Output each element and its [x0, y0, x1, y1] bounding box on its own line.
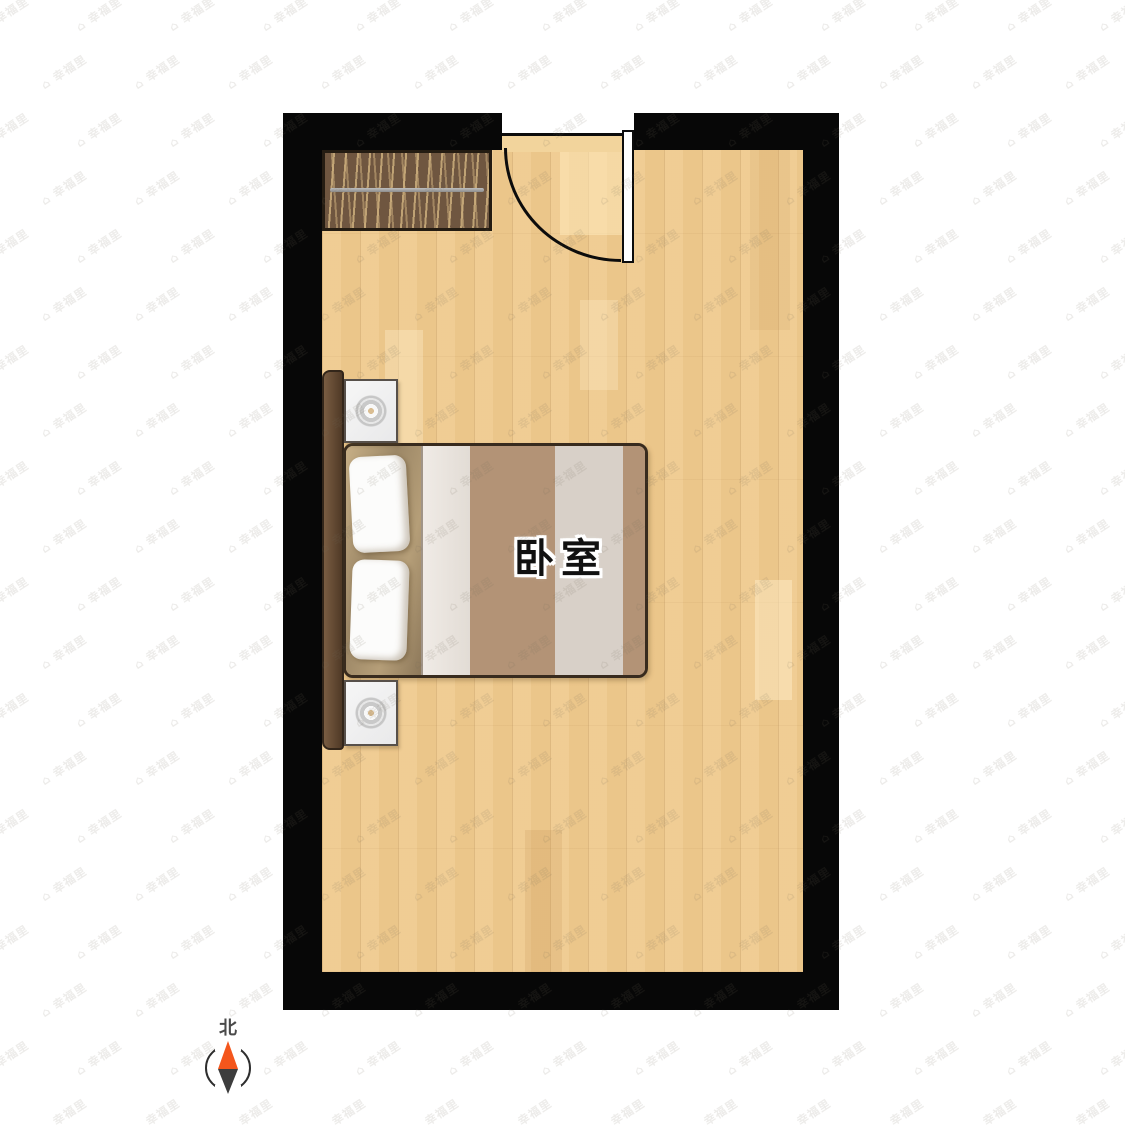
watermark-item: ⌂ 幸福里 [1061, 863, 1113, 905]
watermark-item: ⌂ 幸福里 [166, 225, 218, 267]
watermark-item: ⌂ 幸福里 [1061, 747, 1113, 789]
watermark-item: ⌂ 幸福里 [73, 805, 125, 847]
watermark-item: ⌂ 幸福里 [1061, 1095, 1113, 1125]
watermark-item: ⌂ 幸福里 [38, 51, 90, 93]
watermark-item: ⌂ 幸福里 [538, 1037, 590, 1079]
watermark-item: ⌂ 幸福里 [73, 689, 125, 731]
watermark-item: ⌂ 幸福里 [73, 457, 125, 499]
watermark-item: ⌂ 幸福里 [689, 1095, 741, 1125]
wall-left [283, 113, 322, 1010]
watermark-item: ⌂ 幸福里 [131, 1095, 183, 1125]
watermark-item: ⌂ 幸福里 [1096, 689, 1125, 731]
watermark-item: ⌂ 幸福里 [968, 399, 1020, 441]
watermark-item: ⌂ 幸福里 [631, 0, 683, 35]
watermark-item: ⌂ 幸福里 [1003, 921, 1055, 963]
watermark-item: ⌂ 幸福里 [317, 1095, 369, 1125]
room-label: 卧室 [461, 537, 661, 581]
watermark-item: ⌂ 幸福里 [73, 225, 125, 267]
watermark-item: ⌂ 幸福里 [352, 0, 404, 35]
watermark-item: ⌂ 幸福里 [410, 51, 462, 93]
watermark-item: ⌂ 幸福里 [875, 979, 927, 1021]
watermark-item: ⌂ 幸福里 [724, 1037, 776, 1079]
watermark-item: ⌂ 幸福里 [1061, 167, 1113, 209]
watermark-item: ⌂ 幸福里 [1003, 573, 1055, 615]
watermark-item: ⌂ 幸福里 [968, 747, 1020, 789]
watermark-item: ⌂ 幸福里 [596, 51, 648, 93]
watermark-item: ⌂ 幸福里 [224, 51, 276, 93]
watermark-item: ⌂ 幸福里 [596, 1095, 648, 1125]
watermark-item: ⌂ 幸福里 [875, 1095, 927, 1125]
watermark-item: ⌂ 幸福里 [445, 1037, 497, 1079]
watermark-item: ⌂ 幸福里 [817, 1037, 869, 1079]
watermark-item: ⌂ 幸福里 [224, 167, 276, 209]
watermark-item: ⌂ 幸福里 [38, 283, 90, 325]
watermark-item: ⌂ 幸福里 [968, 51, 1020, 93]
watermark-item: ⌂ 幸福里 [131, 631, 183, 673]
watermark-item: ⌂ 幸福里 [1061, 283, 1113, 325]
watermark-item: ⌂ 幸福里 [38, 979, 90, 1021]
watermark-item: ⌂ 幸福里 [0, 805, 32, 847]
watermark-item: ⌂ 幸福里 [38, 515, 90, 557]
floor-plank-patch [580, 300, 618, 390]
watermark-item: ⌂ 幸福里 [910, 341, 962, 383]
wardrobe-rail-icon [330, 188, 484, 192]
watermark-item: ⌂ 幸福里 [689, 51, 741, 93]
pillow [349, 455, 411, 554]
watermark-item: ⌂ 幸福里 [910, 573, 962, 615]
watermark-item: ⌂ 幸福里 [910, 689, 962, 731]
watermark-item: ⌂ 幸福里 [1061, 515, 1113, 557]
watermark-item: ⌂ 幸福里 [38, 1095, 90, 1125]
watermark-item: ⌂ 幸福里 [910, 805, 962, 847]
watermark-item: ⌂ 幸福里 [224, 863, 276, 905]
watermark-item: ⌂ 幸福里 [73, 341, 125, 383]
watermark-item: ⌂ 幸福里 [166, 805, 218, 847]
watermark-item: ⌂ 幸福里 [631, 1037, 683, 1079]
watermark-item: ⌂ 幸福里 [538, 0, 590, 35]
watermark-item: ⌂ 幸福里 [503, 1095, 555, 1125]
door-opening [502, 112, 634, 133]
watermark-item: ⌂ 幸福里 [224, 515, 276, 557]
watermark-item: ⌂ 幸福里 [1003, 689, 1055, 731]
watermark-item: ⌂ 幸福里 [968, 863, 1020, 905]
watermark-item: ⌂ 幸福里 [0, 0, 32, 35]
watermark-item: ⌂ 幸福里 [968, 979, 1020, 1021]
north-compass: 北 [185, 1010, 275, 1110]
watermark-item: ⌂ 幸福里 [1003, 225, 1055, 267]
watermark-item: ⌂ 幸福里 [1096, 0, 1125, 35]
wardrobe [322, 150, 492, 231]
table-lamp-icon [354, 394, 388, 428]
bed-headboard [322, 370, 344, 750]
watermark-item: ⌂ 幸福里 [166, 921, 218, 963]
watermark-item: ⌂ 幸福里 [131, 979, 183, 1021]
watermark-item: ⌂ 幸福里 [1096, 109, 1125, 151]
watermark-item: ⌂ 幸福里 [410, 1095, 462, 1125]
watermark-item: ⌂ 幸福里 [910, 1037, 962, 1079]
watermark-item: ⌂ 幸福里 [131, 863, 183, 905]
watermark-item: ⌂ 幸福里 [0, 1037, 32, 1079]
watermark-item: ⌂ 幸福里 [73, 109, 125, 151]
floor-plank-patch [755, 580, 792, 700]
watermark-item: ⌂ 幸福里 [1096, 921, 1125, 963]
watermark-item: ⌂ 幸福里 [1096, 341, 1125, 383]
watermark-item: ⌂ 幸福里 [875, 51, 927, 93]
watermark-item: ⌂ 幸福里 [782, 51, 834, 93]
watermark-item: ⌂ 幸福里 [1003, 341, 1055, 383]
watermark-item: ⌂ 幸福里 [1061, 399, 1113, 441]
watermark-item: ⌂ 幸福里 [1003, 0, 1055, 35]
watermark-item: ⌂ 幸福里 [1003, 109, 1055, 151]
watermark-item: ⌂ 幸福里 [875, 863, 927, 905]
watermark-item: ⌂ 幸福里 [910, 457, 962, 499]
watermark-item: ⌂ 幸福里 [317, 51, 369, 93]
floor-plank-patch [750, 150, 790, 330]
watermark-item: ⌂ 幸福里 [224, 747, 276, 789]
watermark-item: ⌂ 幸福里 [166, 573, 218, 615]
watermark-item: ⌂ 幸福里 [0, 573, 32, 615]
watermark-item: ⌂ 幸福里 [1096, 225, 1125, 267]
watermark-item: ⌂ 幸福里 [0, 225, 32, 267]
watermark-item: ⌂ 幸福里 [73, 1037, 125, 1079]
nightstand-top [344, 379, 398, 443]
watermark-item: ⌂ 幸福里 [875, 283, 927, 325]
watermark-item: ⌂ 幸福里 [1096, 1037, 1125, 1079]
watermark-item: ⌂ 幸福里 [875, 399, 927, 441]
floor-plan-page: 卧室 北 ⌂ 幸福里⌂ 幸福里⌂ 幸福里⌂ 幸福里⌂ 幸福里⌂ 幸福里⌂ 幸福里… [0, 0, 1125, 1125]
watermark-item: ⌂ 幸福里 [1003, 805, 1055, 847]
watermark-item: ⌂ 幸福里 [166, 457, 218, 499]
watermark-item: ⌂ 幸福里 [131, 747, 183, 789]
watermark-item: ⌂ 幸福里 [445, 0, 497, 35]
watermark-item: ⌂ 幸福里 [910, 0, 962, 35]
watermark-item: ⌂ 幸福里 [1003, 457, 1055, 499]
watermark-item: ⌂ 幸福里 [38, 631, 90, 673]
watermark-item: ⌂ 幸福里 [1003, 1037, 1055, 1079]
watermark-item: ⌂ 幸福里 [166, 689, 218, 731]
watermark-item: ⌂ 幸福里 [782, 1095, 834, 1125]
compass-north-label: 北 [208, 1014, 248, 1040]
watermark-item: ⌂ 幸福里 [1061, 979, 1113, 1021]
watermark-item: ⌂ 幸福里 [224, 399, 276, 441]
watermark-item: ⌂ 幸福里 [166, 341, 218, 383]
watermark-item: ⌂ 幸福里 [0, 341, 32, 383]
watermark-item: ⌂ 幸福里 [503, 51, 555, 93]
watermark-item: ⌂ 幸福里 [1096, 573, 1125, 615]
watermark-item: ⌂ 幸福里 [352, 1037, 404, 1079]
door-threshold-line [502, 133, 622, 136]
watermark-item: ⌂ 幸福里 [131, 167, 183, 209]
watermark-item: ⌂ 幸福里 [224, 631, 276, 673]
watermark-item: ⌂ 幸福里 [73, 0, 125, 35]
wall-right [803, 113, 839, 1010]
watermark-item: ⌂ 幸福里 [968, 283, 1020, 325]
watermark-item: ⌂ 幸福里 [817, 0, 869, 35]
watermark-item: ⌂ 幸福里 [1061, 631, 1113, 673]
watermark-item: ⌂ 幸福里 [968, 515, 1020, 557]
watermark-item: ⌂ 幸福里 [131, 51, 183, 93]
table-lamp-icon [354, 696, 388, 730]
watermark-item: ⌂ 幸福里 [910, 109, 962, 151]
watermark-item: ⌂ 幸福里 [0, 689, 32, 731]
watermark-item: ⌂ 幸福里 [910, 921, 962, 963]
watermark-item: ⌂ 幸福里 [1096, 457, 1125, 499]
watermark-item: ⌂ 幸福里 [259, 0, 311, 35]
watermark-item: ⌂ 幸福里 [131, 283, 183, 325]
nightstand-bottom [344, 680, 398, 746]
wall-bottom [283, 972, 839, 1010]
watermark-item: ⌂ 幸福里 [875, 631, 927, 673]
watermark-item: ⌂ 幸福里 [968, 1095, 1020, 1125]
watermark-item: ⌂ 幸福里 [166, 109, 218, 151]
watermark-item: ⌂ 幸福里 [968, 631, 1020, 673]
pillow [349, 559, 409, 661]
watermark-item: ⌂ 幸福里 [38, 399, 90, 441]
watermark-item: ⌂ 幸福里 [73, 921, 125, 963]
watermark-item: ⌂ 幸福里 [0, 109, 32, 151]
floor-plank-patch [525, 830, 562, 972]
watermark-item: ⌂ 幸福里 [38, 863, 90, 905]
watermark-item: ⌂ 幸福里 [131, 515, 183, 557]
watermark-item: ⌂ 幸福里 [73, 573, 125, 615]
watermark-item: ⌂ 幸福里 [875, 747, 927, 789]
watermark-item: ⌂ 幸福里 [0, 921, 32, 963]
watermark-item: ⌂ 幸福里 [38, 747, 90, 789]
door-leaf [622, 130, 634, 263]
watermark-item: ⌂ 幸福里 [910, 225, 962, 267]
watermark-item: ⌂ 幸福里 [131, 399, 183, 441]
watermark-item: ⌂ 幸福里 [1096, 805, 1125, 847]
watermark-item: ⌂ 幸福里 [724, 0, 776, 35]
watermark-item: ⌂ 幸福里 [224, 283, 276, 325]
watermark-item: ⌂ 幸福里 [875, 515, 927, 557]
watermark-item: ⌂ 幸福里 [875, 167, 927, 209]
watermark-item: ⌂ 幸福里 [166, 0, 218, 35]
bed-pillow-zone [346, 446, 421, 675]
watermark-item: ⌂ 幸福里 [968, 167, 1020, 209]
watermark-item: ⌂ 幸福里 [38, 167, 90, 209]
watermark-item: ⌂ 幸福里 [0, 457, 32, 499]
watermark-item: ⌂ 幸福里 [1061, 51, 1113, 93]
